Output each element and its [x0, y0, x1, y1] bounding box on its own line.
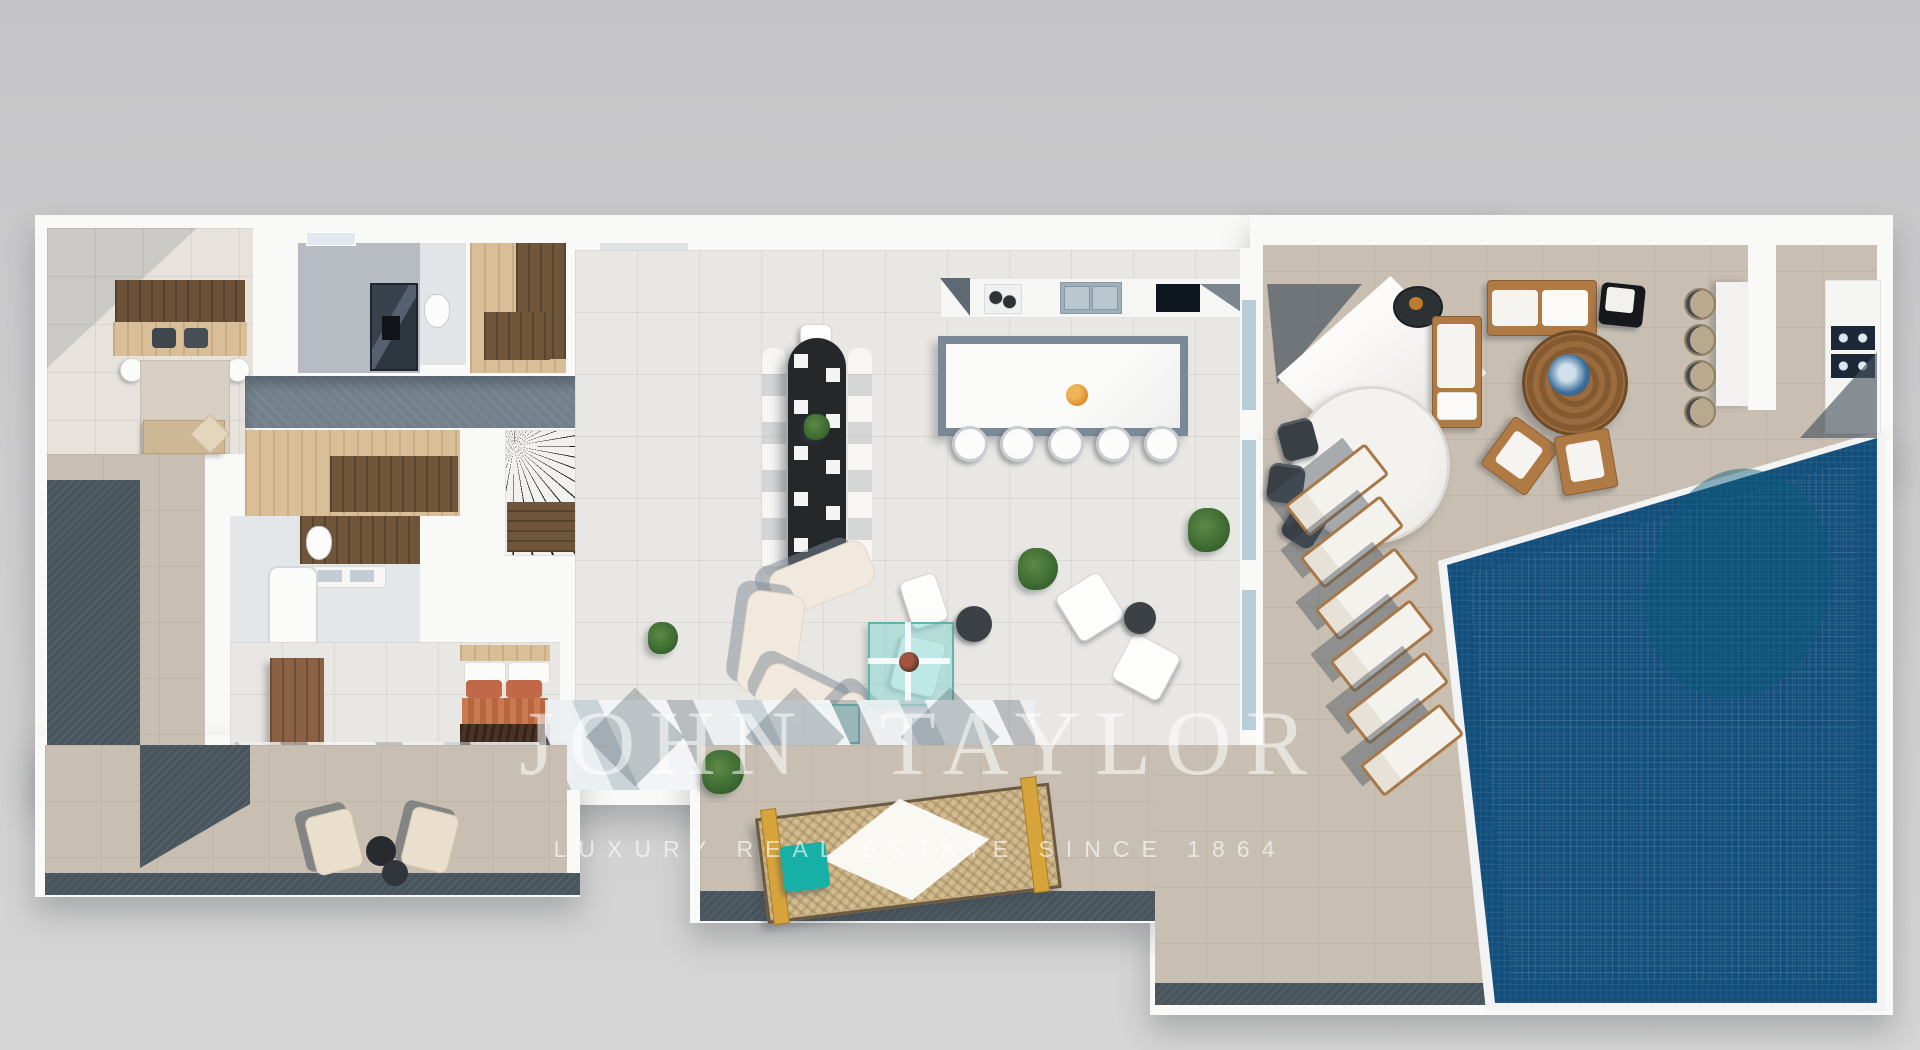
pool-terrace-edge	[1155, 983, 1500, 1005]
glass-pane	[1242, 590, 1256, 730]
glass-pane	[1242, 440, 1256, 560]
terrace-side-table	[382, 860, 408, 886]
bar-stool	[1144, 426, 1180, 462]
blue-decor-bowl	[1548, 354, 1590, 396]
toilet	[424, 294, 450, 328]
sink-basin	[1092, 286, 1118, 310]
second-bed-headboard	[460, 645, 550, 661]
cooktop-with-pots	[984, 284, 1022, 314]
armchair-cushion	[1565, 439, 1605, 482]
staircase-lower-steps	[507, 502, 585, 552]
flower-bouquet	[899, 652, 919, 672]
round-side-table	[1124, 602, 1156, 634]
bed-pillow	[184, 328, 208, 348]
sofa-cushion	[1492, 290, 1538, 326]
wicker-bar-stool	[1684, 324, 1716, 356]
bench-cushion	[1437, 324, 1475, 388]
wicker-bar-stool	[1684, 360, 1716, 392]
bar-stool	[1000, 426, 1036, 462]
shower-door-handle	[382, 316, 400, 340]
sofa-cushion	[1542, 290, 1588, 326]
dining-chairs-left	[762, 348, 786, 576]
double-bed-frame	[113, 322, 247, 356]
bathroom-toilet	[306, 526, 332, 560]
bed-striped-blanket	[462, 698, 548, 726]
wardrobe-counter	[330, 456, 458, 512]
bench-pillow	[1437, 392, 1477, 420]
closet-counter	[484, 312, 550, 360]
black-hob	[1156, 284, 1200, 312]
double-bed-headboard	[115, 280, 245, 324]
fruit-bowl	[1066, 384, 1088, 406]
round-side-table	[956, 606, 992, 642]
wicker-bar-stool	[1684, 396, 1716, 428]
bar-stool	[952, 426, 988, 462]
west-terrace-dark-edge	[47, 480, 140, 746]
bar-stool	[1096, 426, 1132, 462]
sink-basin	[1064, 286, 1090, 310]
bbq-cooktop	[1831, 326, 1875, 350]
bed-pillow	[152, 328, 176, 348]
bathtub	[268, 566, 318, 650]
southwest-terrace-edge	[45, 873, 580, 895]
window-slit	[306, 232, 356, 246]
bar-partition-wall	[1748, 230, 1776, 410]
teal-cube-stool	[779, 841, 830, 892]
bar-stool	[1048, 426, 1084, 462]
bed-pillow-terracotta	[466, 680, 502, 698]
kitchen-island-top	[946, 344, 1180, 428]
place-settings-right	[826, 368, 840, 572]
pool-bar-counter	[1716, 282, 1748, 406]
vanity-sink	[350, 570, 374, 582]
fire-bowl-flame	[1409, 297, 1423, 310]
glass-pane	[1242, 300, 1256, 410]
floor-plan-render: JOHN TAYLOR LUXURY REAL ESTATE SINCE 186…	[0, 0, 1920, 1050]
ottoman-cloth	[1605, 287, 1635, 314]
vanity-sink	[318, 570, 342, 582]
wicker-bar-stool	[1684, 288, 1716, 320]
bed-pillow-terracotta	[506, 680, 542, 698]
place-settings-left	[794, 354, 808, 572]
